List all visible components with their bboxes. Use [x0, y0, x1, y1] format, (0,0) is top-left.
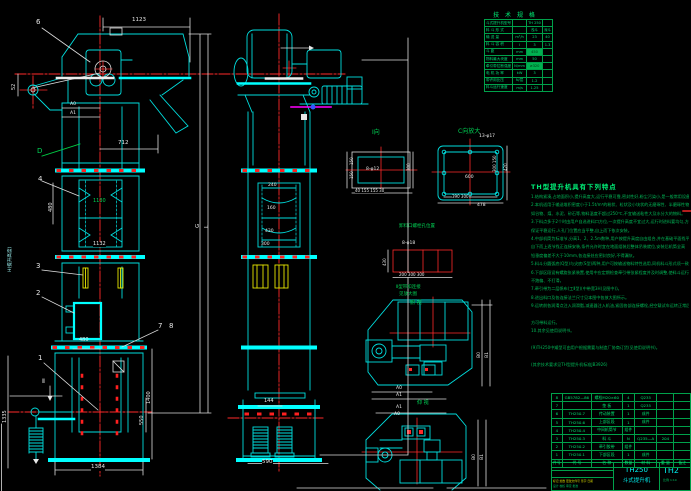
view-c-dim-600: 600 — [465, 176, 474, 181]
discharge-flange-dims: 200 300 300 — [399, 273, 424, 277]
dim-480-left: 480 — [49, 202, 54, 212]
bom-item-no: 7 — [552, 402, 563, 410]
bom-header-code: 代 号 — [562, 459, 591, 467]
dim-430-side: 430 — [265, 230, 274, 235]
bom-qty: 1 — [622, 402, 634, 410]
spec-row: 斗式提升机型号 TH 250 — [485, 20, 553, 27]
note-line: 5.料斗分圆弧底(Q型)与尖底(S型)两种,用户可按输送物料特性选用,同机料斗形… — [531, 260, 689, 268]
spec-value-2 — [542, 55, 552, 62]
note-line: 2.本机适用于输送堆积密度小于1.5t/m³的粉状、粒状及小块状的无磨琢性、半磨… — [531, 201, 689, 209]
spec-value-2 — [542, 48, 552, 55]
dim-240: 240 — [268, 184, 277, 189]
bom-material: Q235—A — [635, 434, 657, 442]
bom-remark — [674, 443, 691, 451]
bom-name: 垫 板 — [591, 402, 622, 410]
spec-label: 斗式提升机型号 — [485, 20, 513, 27]
bom-row: 5 TH250.6 上部区段 1 成件 — [552, 418, 691, 426]
dim-a0: A0 — [70, 103, 76, 108]
bom-material: 成件 — [635, 451, 657, 459]
spec-row: 带许用比压 N/层 1.2 — [485, 77, 553, 84]
note-line: 9.运转前各润滑点注入润滑脂,减速器注入机油,紧固各部连接螺栓,经空载试车运转正… — [531, 302, 689, 310]
dim-1123: 1123 — [132, 18, 146, 24]
spec-value-1: 3 — [527, 70, 543, 77]
belt-joint-note-2: 见放大图 — [399, 293, 417, 298]
spec-row: 牵引带拉断强度 N/mm ≥320 — [485, 63, 553, 70]
spec-value-2 — [542, 84, 552, 91]
bom-weight — [657, 451, 674, 459]
spec-row: 物料最大块度 mm 50 — [485, 55, 553, 62]
spec-row: 料 斗 容 积 l 3 1.3 — [485, 41, 553, 48]
spec-unit: m/s — [513, 84, 527, 91]
spec-value-2 — [542, 77, 552, 84]
view-c-title: C向放大 — [458, 129, 480, 135]
bom-item-no: 3 — [552, 434, 563, 442]
bom-remark — [674, 418, 691, 426]
bom-code: GB5782—86 — [562, 394, 591, 402]
dim-1400: 1400 — [147, 391, 152, 404]
bom-body: 8 GB5782—86 螺栓M20×60 4 Q235 7 垫 板 1 Q235… — [552, 394, 691, 460]
bom-remark — [674, 394, 691, 402]
spec-label: 斗 距 — [485, 48, 513, 55]
belt-joint-note-1: Ⅱ型带扣连接 — [396, 286, 421, 291]
bom-code: TH250.6 — [562, 418, 591, 426]
spec-value-2 — [542, 63, 552, 70]
note-line — [531, 336, 689, 344]
spec-value-1: 3 — [527, 41, 543, 48]
bom-weight — [657, 426, 674, 434]
plan-view-1-title: 俯 视 — [410, 301, 422, 306]
dim-590: 590 — [262, 460, 273, 466]
bom-header-material: 材 料 — [635, 459, 657, 467]
note-line: 如谷物、煤、水泥、砂石等,物料温度不超过250℃,不宜输送粘性大及水分大的物料。 — [531, 210, 689, 218]
bom-code — [562, 402, 591, 410]
dim-g: G — [196, 224, 202, 228]
spec-unit — [513, 20, 527, 27]
bom-item-no: 4 — [552, 426, 563, 434]
bom-weight — [657, 402, 674, 410]
bom-row: 3 TH250.3 料 斗 N Q235—A 204 — [552, 434, 691, 442]
bom-row: 4 TH250.4 中间机筒节 组件 — [552, 426, 691, 434]
note-line: 10.其余见使用说明书。 — [531, 327, 689, 335]
pv2-dim-a1: A1 — [396, 406, 402, 411]
note-line — [531, 352, 689, 360]
bom-weight — [657, 410, 674, 418]
view-i-dim-left2: 150 — [350, 171, 354, 179]
balloon-7: 7 — [158, 323, 162, 330]
bom-item-no: 1 — [552, 451, 563, 459]
note-line: 自下而上逐节找正连接安装,条件允许时宜在地面组装后整体吊装就位,安装后机筒全高 — [531, 243, 689, 251]
bom-name: 螺栓M20×60 — [591, 394, 622, 402]
note-line: 8.进出料口及各连接法兰尺寸见本图中各放大图所示。 — [531, 294, 689, 302]
view-i-title: Ⅰ向 — [372, 130, 380, 136]
view-c-dims-bottom: 390 300 — [452, 195, 469, 199]
spec-unit: m³/h — [513, 34, 527, 41]
bom-weight — [657, 394, 674, 402]
bom-header-no: 件号 — [552, 459, 563, 467]
bom-material: Q235 — [635, 394, 657, 402]
view-d-label: D — [37, 148, 42, 155]
bom-remark — [674, 451, 691, 459]
discharge-flange-dim-v: 430 — [383, 258, 387, 266]
spec-label: 牵引带拉断强度 — [485, 63, 513, 70]
bom-row: 7 垫 板 1 Q235 — [552, 402, 691, 410]
spec-value-2: 40 — [542, 34, 552, 41]
balloon-6: 6 — [36, 19, 40, 26]
spec-table-body: 斗式提升机型号 TH 250 料 斗 形 式 浅斗 深斗 输 送 量 m³/h … — [485, 20, 553, 92]
dim-300-side: 300 — [261, 243, 270, 248]
bom-item-no: 8 — [552, 394, 563, 402]
pv2-dim-b1: B1 — [481, 454, 486, 460]
note-line — [531, 310, 689, 318]
dim-1130: 1130 — [93, 199, 106, 204]
notes-list: 1.结构紧凑,占地面积小,提升高度大,运行平稳可靠,密封性好,粉尘污染小,是一般… — [531, 193, 689, 369]
bom-name: 牵引胶带 — [591, 443, 622, 451]
note-line: 保证平稳运行,人孔门位置应当平整,自上而下依次安装。 — [531, 227, 689, 235]
bom-code: TH250.2 — [562, 443, 591, 451]
bom-qty: 组件 — [622, 426, 634, 434]
bom-qty: 1 — [622, 418, 634, 426]
spec-label: 物料最大块度 — [485, 55, 513, 62]
dim-52: 52 — [12, 84, 17, 90]
bom-material — [635, 443, 657, 451]
spec-value-1: 1.2 — [527, 77, 543, 84]
spec-label: 带许用比压 — [485, 77, 513, 84]
dim-160: 160 — [267, 207, 276, 212]
balloon-8: 8 — [169, 323, 173, 330]
bom-item-no: 5 — [552, 418, 563, 426]
note-line: (9)TH250中矮型可由用户根据需要与制造厂协商订货(见使用说明书)。 — [531, 344, 689, 352]
spec-value-1: ≥320 — [527, 63, 543, 70]
spec-value-1: TH 250 — [527, 20, 543, 27]
view-c-dim-total: 478 — [477, 204, 486, 209]
spec-row: 料斗运行速度 m/s 1.25 — [485, 84, 553, 91]
spec-row: 电 机 功 率 kW 3 — [485, 70, 553, 77]
bom-row: 8 GB5782—86 螺栓M20×60 4 Q235 — [552, 394, 691, 402]
dim-144: 144 — [264, 399, 274, 404]
spec-row: 斗 距 mm 450 — [485, 48, 553, 55]
dim-1335: 1335 — [3, 410, 8, 423]
dim-l: L — [205, 225, 211, 228]
bom-qty: 1 — [622, 451, 634, 459]
spec-table: 斗式提升机型号 TH 250 料 斗 形 式 浅斗 深斗 输 送 量 m³/h … — [484, 19, 553, 92]
balloon-4: 4 — [38, 176, 42, 183]
bom-row: 2 TH250.2 牵引胶带 组件 — [552, 443, 691, 451]
bom-code: TH250.1 — [562, 451, 591, 459]
plan-view-2-title: 仰 视 — [417, 401, 429, 406]
pv1-dim-a1: A1 — [396, 394, 402, 399]
spec-value-1: 450 — [527, 48, 543, 55]
view-c-dim-right1: 300 150 — [493, 155, 497, 172]
balloon-1: 1 — [38, 355, 42, 362]
view-i-dims-bottom: 40 155 155 30 — [355, 189, 384, 193]
bom-header-name: 名 称 — [591, 459, 622, 467]
bom-material — [635, 426, 657, 434]
dim-550: 550 — [140, 415, 145, 425]
bom-qty: 1 — [622, 410, 634, 418]
note-line: 4.中部机筒为标准节,分高1、2、2.5m数种,用户按提升高度自由组合,并在基础… — [531, 235, 689, 243]
bom-material: Q235 — [635, 402, 657, 410]
view-i-holes: 8-φ12 — [366, 168, 379, 173]
view-i-dim-right: 300 — [407, 163, 411, 171]
bom-material: 成件 — [635, 410, 657, 418]
bom-row: 6 TH250.7 传动装置 1 成件 — [552, 410, 691, 418]
spec-value-1: 50 — [527, 55, 543, 62]
bom-row: 1 TH250.1 下部区段 1 成件 — [552, 451, 691, 459]
bom-qty: 组件 — [622, 443, 634, 451]
spec-label: 料 斗 容 积 — [485, 41, 513, 48]
dim-a1: A1 — [70, 112, 76, 117]
pv1-dim-a0: A0 — [396, 387, 402, 392]
note-line: (其余技术要求见TH型提升机标准JB3926) — [531, 361, 689, 369]
balloon-2: 2 — [36, 290, 40, 297]
notes-title: TH型提升机具有下列特点 — [531, 182, 689, 191]
bom-name: 中间机筒节 — [591, 426, 622, 434]
spec-unit: mm — [513, 48, 527, 55]
bom-name: 料 斗 — [591, 434, 622, 442]
spec-value-2: 深斗 — [542, 27, 552, 34]
bom-table: 8 GB5782—86 螺栓M20×60 4 Q235 7 垫 板 1 Q235… — [551, 393, 691, 468]
dim-1132: 1132 — [93, 242, 106, 247]
bom-weight — [657, 418, 674, 426]
dim-h-height: H(提升高度) — [9, 247, 14, 272]
pv1-dim-b1: B1 — [486, 352, 491, 358]
spec-label: 电 机 功 率 — [485, 70, 513, 77]
bom-name: 下部区段 — [591, 451, 622, 459]
pv2-dim-b0: B0 — [473, 454, 478, 460]
bom-material: 成件 — [635, 418, 657, 426]
note-line: 不跑偏、不打滑。 — [531, 277, 689, 285]
note-line: 方可带料运行。 — [531, 319, 689, 327]
bom-qty: N — [622, 434, 634, 442]
spec-unit: N/mm — [513, 63, 527, 70]
note-line: 1.结构紧凑,占地面积小,提升高度大,运行平稳可靠,密封性好,粉尘污染小,是一般… — [531, 193, 689, 201]
notes-panel: TH型提升机具有下列特点 1.结构紧凑,占地面积小,提升高度大,运行平稳可靠,密… — [531, 182, 689, 369]
spec-unit: l — [513, 41, 527, 48]
balloon-3: 3 — [36, 263, 40, 270]
bom-weight: 204 — [657, 434, 674, 442]
spec-table-title: 技 术 规 格 — [480, 10, 550, 19]
bom-remark — [674, 434, 691, 442]
pv2-dim-a0: A0 — [394, 413, 400, 418]
bom-qty: 4 — [622, 394, 634, 402]
bom-code: TH250.7 — [562, 410, 591, 418]
spec-value-1: 浅斗 — [527, 27, 543, 34]
spec-table-panel: 技 术 规 格 斗式提升机型号 TH 250 料 斗 形 式 浅斗 深斗 — [480, 10, 553, 92]
spec-label: 料 斗 形 式 — [485, 27, 513, 34]
spec-unit — [513, 27, 527, 34]
bom-name: 传动装置 — [591, 410, 622, 418]
view-c-holes: 13-φ17 — [479, 135, 495, 140]
spec-unit: kW — [513, 70, 527, 77]
spec-row: 料 斗 形 式 浅斗 深斗 — [485, 27, 553, 34]
spec-unit: mm — [513, 55, 527, 62]
dim-712: 712 — [118, 141, 129, 147]
bom-header-qty: 数量 — [622, 459, 634, 467]
note-line: 7.牵引带为二层帆布(工Ⅱ型)(中带宽3H(见图中))。 — [531, 285, 689, 293]
cad-drawing-viewport: 6 1123 52 A0 A1 D 712 4 480 1130 1132 H(… — [0, 0, 691, 491]
spec-value-1: 23 — [527, 34, 543, 41]
bom-code: TH250.3 — [562, 434, 591, 442]
view-c-dim-right2: 420 — [504, 163, 508, 171]
spec-value-1: 1.25 — [527, 84, 543, 91]
dim-480-boot: 480 — [79, 338, 89, 343]
bom-header-weight: 重 量 — [657, 459, 674, 467]
bom-item-no: 6 — [552, 410, 563, 418]
bom-code: TH250.4 — [562, 426, 591, 434]
spec-value-2: 1.3 — [542, 41, 552, 48]
dim-1384: 1384 — [91, 465, 105, 471]
view-i-dim-left1: 150 — [350, 157, 354, 165]
spec-row: 输 送 量 m³/h 23 40 — [485, 34, 553, 41]
spec-label: 料斗运行速度 — [485, 84, 513, 91]
spec-value-2 — [542, 20, 552, 27]
discharge-flange-title: 卸料口螺栓孔位置 — [399, 225, 435, 230]
bom-item-no: 2 — [552, 443, 563, 451]
spec-value-2 — [542, 70, 552, 77]
bom-remark — [674, 410, 691, 418]
spec-label: 输 送 量 — [485, 34, 513, 41]
pv1-dim-b0: B0 — [478, 352, 483, 358]
bom-header-row: 件号 代 号 名 称 数量 材 料 重 量 备注 — [552, 459, 691, 467]
bom-remark — [674, 426, 691, 434]
bom-name: 上部区段 — [591, 418, 622, 426]
note-line: 6.下部区段设有螺旋张紧装置,使用中应定期检查牵引带张紧程度并及时调整,使料斗运… — [531, 269, 689, 277]
bom-header-remark: 备注 — [674, 459, 691, 467]
bom-weight — [657, 443, 674, 451]
note-line: 铅垂度偏差不大于10mm,各连接处应密封良好,不得漏灰。 — [531, 252, 689, 260]
note-line: 3.下料点多于2个时由用户自选进料口方位,一次提升高度不宜过大,运行时进料要均匀… — [531, 218, 689, 226]
discharge-flange-holes: 8-φ18 — [402, 242, 415, 247]
bom-remark — [674, 402, 691, 410]
section-ii-marker: Ⅱ — [42, 379, 45, 385]
spec-unit: N/层 — [513, 77, 527, 84]
